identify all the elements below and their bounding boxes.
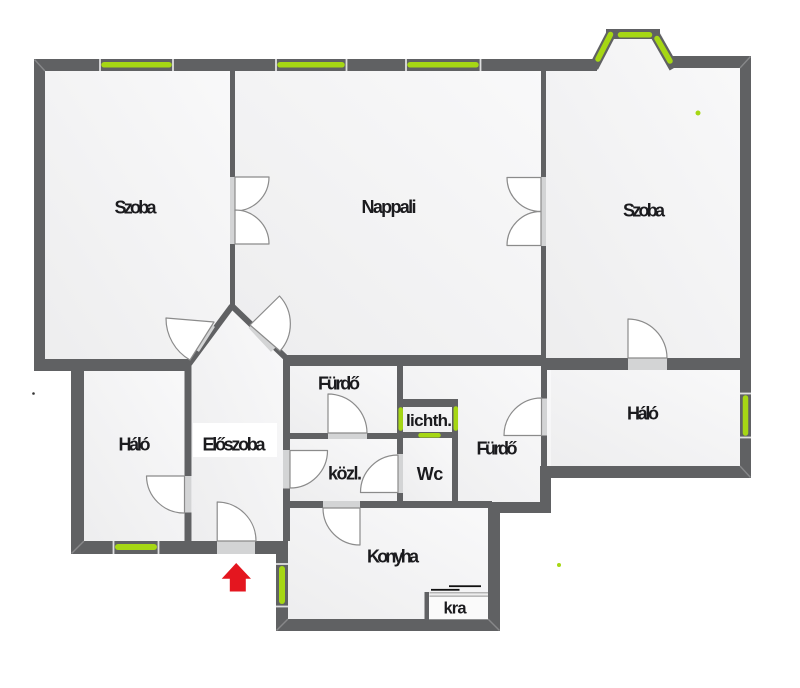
svg-text:Előszoba: Előszoba bbox=[203, 435, 267, 455]
svg-text:Szoba: Szoba bbox=[115, 198, 158, 218]
svg-text:Háló: Háló bbox=[627, 404, 659, 424]
svg-text:Konyha: Konyha bbox=[367, 547, 420, 567]
svg-text:lichth.: lichth. bbox=[406, 411, 452, 430]
svg-text:Fürdő: Fürdő bbox=[318, 374, 360, 394]
svg-text:Nappali: Nappali bbox=[362, 197, 417, 217]
svg-text:Wc: Wc bbox=[417, 464, 444, 484]
svg-text:Háló: Háló bbox=[119, 435, 151, 455]
svg-text:kra: kra bbox=[444, 599, 468, 617]
svg-text:Szoba: Szoba bbox=[623, 201, 666, 221]
svg-text:Fürdő: Fürdő bbox=[477, 439, 518, 459]
svg-text:közl.: közl. bbox=[328, 464, 362, 484]
